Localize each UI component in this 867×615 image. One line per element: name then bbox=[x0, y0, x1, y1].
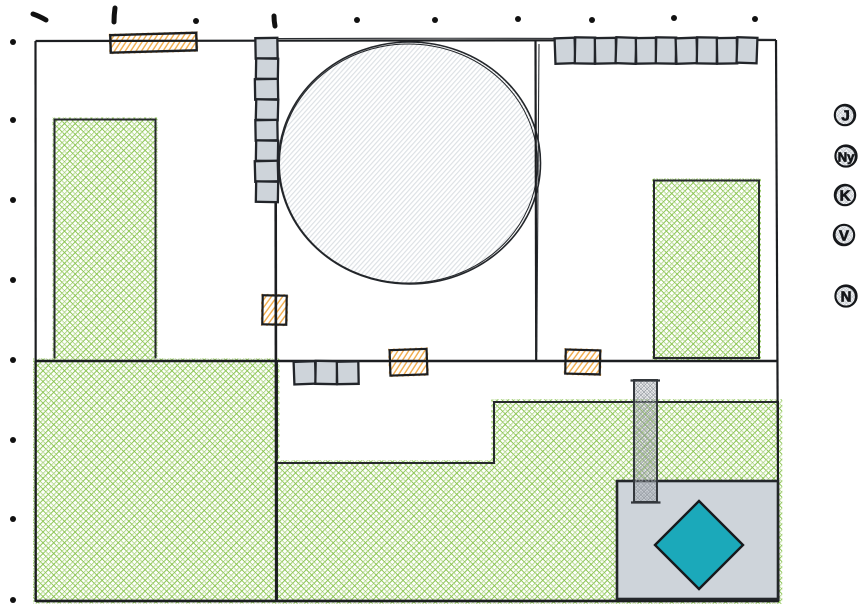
svg-text:J: J bbox=[841, 108, 849, 125]
svg-text:N: N bbox=[841, 289, 852, 306]
svg-text:V: V bbox=[839, 228, 849, 245]
svg-text:Ny: Ny bbox=[838, 150, 855, 165]
svg-text:K: K bbox=[840, 188, 851, 205]
